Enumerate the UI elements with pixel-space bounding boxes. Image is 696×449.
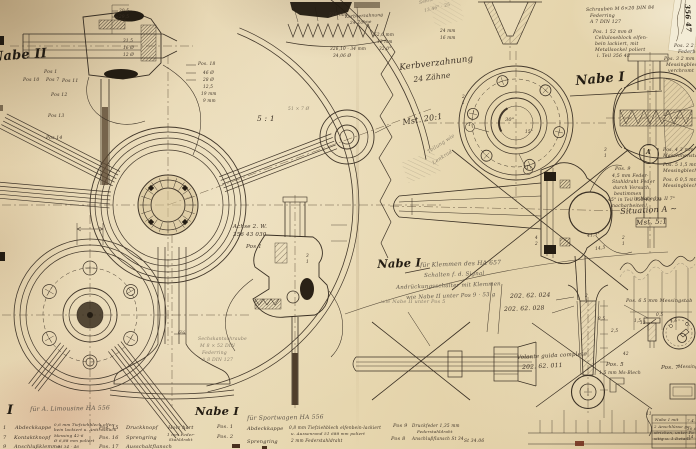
dimensions-text: 30° [505,118,514,123]
situation-a-scale: Mst. 5:1 [636,218,667,227]
parts_list-text: 2 mm Federstahldraht [291,439,343,443]
dimensions-text: 1 [306,260,309,264]
parts_list-text: Pos 9 [393,424,408,429]
parts_list-text: Druckknopf [126,426,158,431]
dimensions-text: 12,5 [203,85,213,89]
nabe1-center-title: Nabe I [377,257,421,270]
revision_table-text: 2 Anschlüsse ge- [654,425,691,429]
parts_list-text: Abdeckkappe [247,427,283,432]
dimensions-text: 14,5 [595,247,606,253]
dimensions-text: 31,5 [123,39,133,43]
dimensions-text: 34,06 Ø [333,54,351,58]
dimensions-text: A [646,150,651,156]
notes-text: Federring [590,15,615,20]
notes-text: Pos. 5 1,5 mm [663,164,696,169]
notes-text: Pos. 7 [661,366,679,372]
parts_list-text: Kontaktknopf [14,436,51,441]
notes-text: Messingblech [666,64,696,69]
notes-text: bein lackiert, mit [595,43,639,48]
notes-text: Messing [678,366,696,370]
parts_list-text: 1 [3,426,6,431]
notes-text: für Sportwagen HA 556 [247,415,324,422]
dimensions-text: 2,5 [611,329,618,333]
notes-text: Pos 1 [246,245,262,251]
parts_list-text: Federstahldraht [417,430,453,434]
notes-text: Pos. 3 2 mm [664,58,695,63]
dimensions-text: 16 mm [440,36,456,40]
parts_list-text: Stahldraht [169,438,193,442]
nabe1-bottom-title: Nabe I [195,406,239,418]
notes-text: Lenkrad [432,150,454,166]
dimensions-text: 28 Ø [203,78,214,82]
parts_list-text: Druckfeder 1,35 mm [412,424,460,428]
dimensions-text: 9 mm [203,99,216,103]
notes-text: Schrauben M 6×20 DIN 84 [586,7,654,14]
notes-text: Messingblech [663,185,696,190]
dimensions-text: 29,5 [119,15,129,19]
parts_list-text: 9 [3,445,6,449]
notes-text: nacharbeiten! [612,205,647,210]
notes-text: durch Versuch [613,187,649,192]
notes-text: 51 × 7 Ø [288,108,309,112]
dimensions-text: 4 [535,236,538,240]
dimensions-text: Pos 7 [46,79,59,84]
kerbverzahnung-label: Kerbverzahnung [399,55,474,72]
dimensions-text: 19 mm [201,92,217,96]
notes-text: Pos. 4 3 mm [663,149,694,154]
notes-text: Pos. 1 52 mm Ø [593,31,632,36]
nabe1-top-title: Nabe I [575,71,625,88]
parts_list-text: Pos. 16 [99,436,119,441]
notes-text: für Klemmen des HA 657 [420,260,501,269]
dimensions-text: 1 [604,154,607,158]
dimensions-text: Pos 10 [23,79,40,84]
notes-text: Pos. 2 2 mm [674,45,696,50]
parts_list-text: Ausschaltflansch [126,445,172,449]
notes-text: Federblech [678,51,696,56]
notes-text: Pos. 5 [606,363,624,369]
dimensions-text: 13,46° · 25 [424,4,451,15]
revision_table-text: 11 [646,412,652,416]
dimensions-text: 0,5 [656,313,663,317]
notes-text: Federring [202,352,227,357]
dimensions-text: 1 [462,101,465,105]
dimensions-text: 6¼ [178,332,185,336]
notes-text: Sechskantschraube [198,338,247,343]
notes-text: Maschinenstahl [663,155,696,160]
dimensions-text: 2 [535,242,538,246]
notes-text: Pos. 6 5 mm Messingstab [626,300,693,305]
parts_list-text: 7 [3,436,6,441]
dimensions-text: 16 Ø [123,46,134,50]
notes-text: M 8 × 52 DIN [200,345,235,350]
notes-text: 356 43 030 [233,233,267,239]
notes-text: 202. 62. 011 [522,363,563,371]
nabe2-title: Nabe II [0,47,48,64]
notes-text: Volante guida completo [517,352,587,361]
notes-text: Schalten f. d. Signal [424,272,485,280]
parts_list-text: Abdeckkappe [15,426,51,431]
revision_table-text: Nabe I mit [655,418,679,422]
dimensions-text: 30,5 [119,9,129,13]
dimensions-text: 4,5 [670,319,677,323]
annotations-layer: Nabe IIKerbverzahnung24 ZähneMst. 20:1Na… [0,0,696,449]
notes-text: Metallsockel poliert [595,49,645,54]
notes-text: Stahldraht Feder [612,181,655,186]
parts_list-text: Pos. 2 [217,435,233,440]
dimensions-text: 12 Ø [123,53,134,57]
parts_list-text: M 34 · 46 [58,445,79,449]
parts_list-text: Anschlußklemme [14,445,60,449]
notes-text: für A. Limousine HA 556 [30,406,110,413]
dimensions-text: 42 [623,352,629,356]
dimensions-text: Pos 13 [48,115,65,120]
parts_list-text: Pos 8 [391,437,406,442]
dimensions-text: 3 [306,254,309,258]
dimensions-text: 12 mm [377,40,393,44]
dimensions-text: Pos 1 [44,71,57,76]
notes-text: 24 Zähne [350,20,372,25]
parts_list-text: u. Aussenrand 51 688 mm poliert [291,432,365,436]
dimensions-text: 326,10 · 34 mm [330,47,366,51]
dimensions-text: 1 [622,242,625,246]
parts_list-text: Sprengring [247,440,278,445]
notes-text: Pos. 9 [615,168,631,173]
dimensions-text: Pos 12 [51,94,68,99]
dimensions-text: 8,5 [598,317,605,321]
dimensions-text: 24 mm [440,29,456,33]
bottom-left-numeral: I [7,404,13,417]
notes-text: A 7 DIN 127 [590,21,621,26]
revision_table-text: sitig u. 1 Details [654,437,691,441]
parts_list-text: Pos. 17 [99,445,119,449]
revision_table-text: 14. [688,435,695,439]
dimensions-text: 1 [585,300,588,304]
dimensions-text: Pos. 18 [198,63,215,67]
notes-text: Celluloseblock elfen- [595,37,648,42]
parts_list-text: Pos. 1 [217,425,233,430]
dimensions-text: 15° [525,130,533,134]
dimensions-text: 12 [640,321,646,325]
notes-text: Andrückungsschalter mit Klemmen [396,282,501,291]
kerbverzahnung-teeth: 24 Zähne [413,71,451,83]
notes-text: in Nabe I u. II 7° [634,198,675,202]
dimensions-text: 2 [585,294,588,298]
parts_list-text: Anschlußflansch St 34 [412,437,464,441]
parts_list-text: Pos. 15 [99,426,119,431]
dimensions-text: 3 [604,148,607,152]
scale-20-1: Mst. 20:1 [402,113,443,127]
dimensions-text: Pos 14 [46,137,63,142]
notes-text: Messingblech [663,170,696,175]
dimensions-text: Pos 11 [62,80,79,85]
notes-text: Pos. 6 0,5 mm [663,179,696,184]
notes-text: wie Nabe II unter Pos 5 [381,300,446,305]
notes-text: i. Teil 356 43 [597,55,630,60]
parts_list-text: Sprengring [126,436,157,441]
dimensions-text: St 34.06 [464,440,484,444]
dimensions-text: 1 [526,167,529,172]
parts_list-text: 0,8 mm Tiefziehblech elfenbein-lackiert [289,426,381,430]
notes-text: 1,5 mm Ms-Blech [599,372,641,376]
parts_list-text: Ø 6,88 mm poliert [54,439,94,443]
blueprint-photo: Nabe IIKerbverzahnung24 ZähneMst. 20:1Na… [0,0,696,449]
dimensions-text: 320 mm [329,13,347,17]
dimensions-text: 46 Ø [203,71,214,75]
notes-text: 202. 62. 024 [510,293,551,300]
notes-text: 202. 62. 028 [504,306,545,313]
dimensions-text: 41,5° [587,233,600,239]
notes-text: Achse 2. W. [233,225,267,231]
patch-number: 356 47 [684,4,692,32]
revision_table-text: 7.4. [687,419,695,423]
revision_table-text: 30.6. [687,427,696,431]
dimensions-text: 52,0 mm [374,33,394,37]
dimensions-text: 1 [468,124,471,129]
dimensions-text: 2 [622,236,625,240]
scale-5-1: 5 : 1 [257,115,275,123]
notes-text: verchromt [668,70,694,75]
notes-text: 4,5 mm Feder- [612,175,649,180]
dimensions-text: 2 [462,95,465,99]
parts_list-text: Holz hart [168,426,194,431]
dimensions-text: 32,0° [379,47,391,51]
notes-text: A 8 DIN 127 [202,359,233,364]
